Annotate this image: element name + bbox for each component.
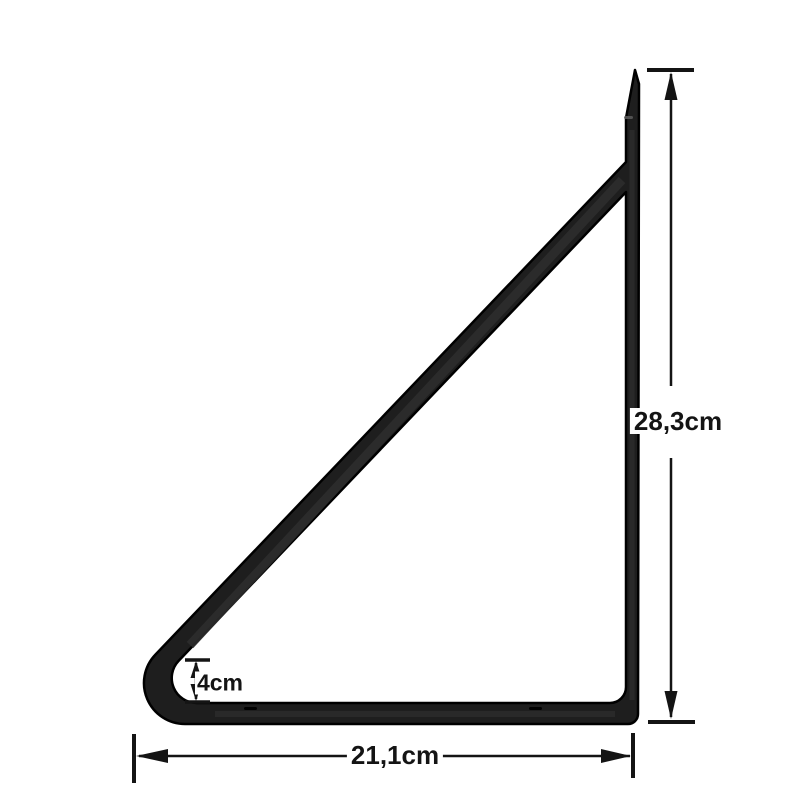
arrow-up-icon [665, 72, 678, 100]
screw-slot-icon [244, 707, 257, 710]
arrow-left-icon [136, 749, 168, 763]
bracket [144, 70, 639, 724]
bracket-shape [144, 70, 639, 724]
height-dimension-label: 28,3cm [630, 408, 726, 434]
arrow-right-icon [601, 749, 631, 763]
diagram-canvas [0, 0, 807, 807]
screw-slot-icon [624, 116, 633, 119]
height-dimension [647, 70, 695, 722]
lip-dimension-label: 4cm [195, 672, 245, 695]
bracket-dimension-diagram: 28,3cm 21,1cm 4cm [0, 0, 807, 807]
diagonal-sheen [190, 180, 622, 645]
width-dimension-label: 21,1cm [347, 742, 443, 768]
screw-slot-icon [529, 707, 542, 710]
arrow-down-icon [665, 691, 678, 719]
